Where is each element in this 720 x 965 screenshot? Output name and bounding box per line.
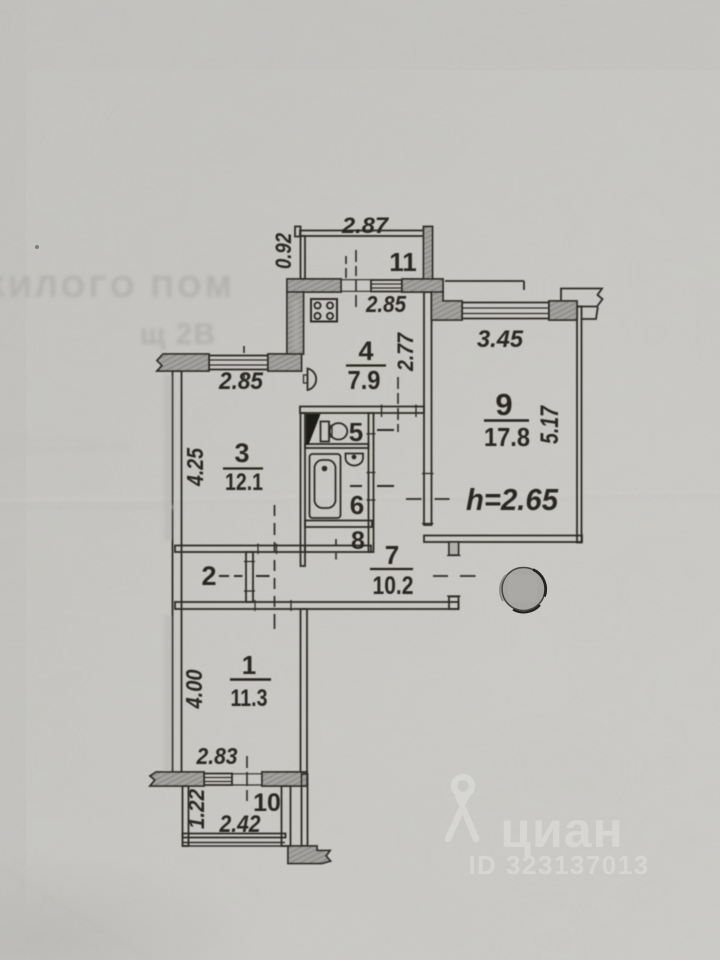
svg-text:пластик: пластик — [78, 439, 130, 454]
svg-text:2.77: 2.77 — [393, 331, 418, 371]
svg-text:10.2: 10.2 — [373, 572, 414, 600]
svg-text:ID 323137013: ID 323137013 — [468, 850, 649, 880]
svg-text:9: 9 — [495, 387, 512, 422]
svg-text:4.25: 4.25 — [182, 447, 208, 487]
svg-text:7.9: 7.9 — [348, 365, 381, 395]
svg-text:2.83: 2.83 — [196, 743, 238, 769]
svg-text:3: 3 — [234, 438, 249, 468]
svg-text:h=2.65: h=2.65 — [466, 482, 559, 517]
svg-text:5.17: 5.17 — [536, 405, 564, 444]
svg-text:КИЛОГО ПОМ: КИЛОГО ПОМ — [0, 269, 235, 304]
svg-text:2.87: 2.87 — [341, 213, 390, 238]
svg-text:6: 6 — [350, 490, 364, 520]
svg-text:2.85: 2.85 — [365, 291, 407, 317]
svg-text:1: 1 — [242, 650, 256, 680]
svg-text:4.00: 4.00 — [181, 669, 207, 709]
svg-text:0.92: 0.92 — [271, 232, 296, 269]
svg-text:12.1: 12.1 — [225, 469, 263, 496]
svg-text:щ 2В: щ 2В — [140, 318, 216, 351]
svg-text:2.85: 2.85 — [218, 368, 264, 395]
svg-text:3.45: 3.45 — [477, 326, 524, 353]
svg-text:2.42: 2.42 — [219, 811, 261, 838]
svg-text:4: 4 — [358, 336, 373, 366]
svg-text:2: 2 — [201, 561, 216, 591]
svg-text:7: 7 — [385, 540, 399, 570]
svg-text:8: 8 — [351, 527, 365, 555]
svg-text:17.8: 17.8 — [484, 422, 530, 452]
svg-text:1.22: 1.22 — [184, 788, 209, 829]
svg-text:5: 5 — [349, 417, 363, 447]
svg-text:11.3: 11.3 — [231, 685, 268, 712]
svg-text:11: 11 — [389, 247, 417, 277]
